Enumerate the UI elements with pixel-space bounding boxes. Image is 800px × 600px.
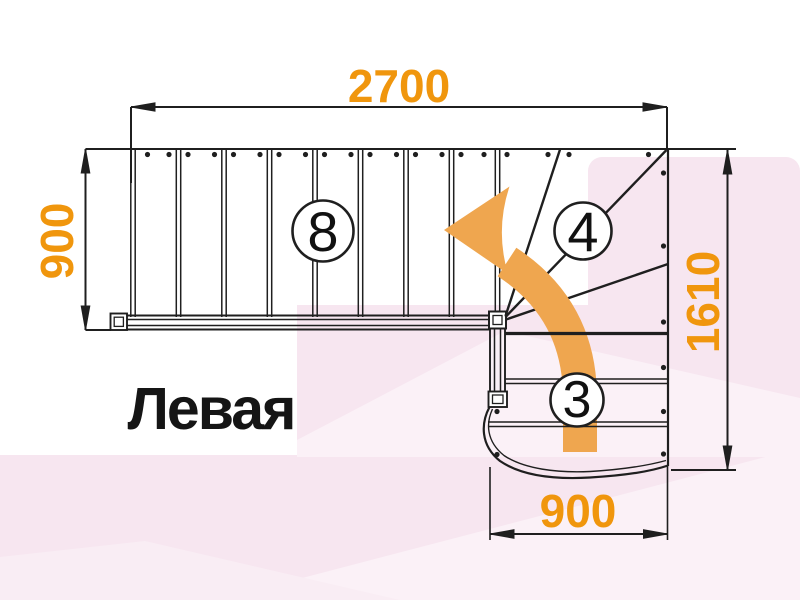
- upper-flight-step-count: 8: [283, 191, 363, 271]
- lower-flight-step-count: 3: [537, 360, 617, 440]
- dimension-top-2700: [131, 103, 667, 183]
- arrowhead: [81, 149, 90, 173]
- dim-right-label: 1610: [679, 212, 727, 392]
- arrowhead: [131, 103, 155, 111]
- dimension-left-900: [81, 149, 111, 330]
- newel-post-center-inner: [493, 316, 502, 325]
- newel-post-left-inner: [114, 317, 123, 326]
- arrowhead: [643, 103, 667, 111]
- dim-left-label: 900: [33, 151, 81, 331]
- staircase-plan-diagram: 2700 900 1610 900 8 4 3 Левая: [0, 0, 800, 600]
- newel-post-lower-inner: [493, 395, 504, 404]
- page-title: Левая: [86, 380, 336, 438]
- dim-bottom-label: 900: [488, 487, 668, 535]
- dim-top-label: 2700: [309, 62, 489, 110]
- arrowhead: [81, 306, 90, 330]
- winder-step-count: 4: [543, 191, 623, 271]
